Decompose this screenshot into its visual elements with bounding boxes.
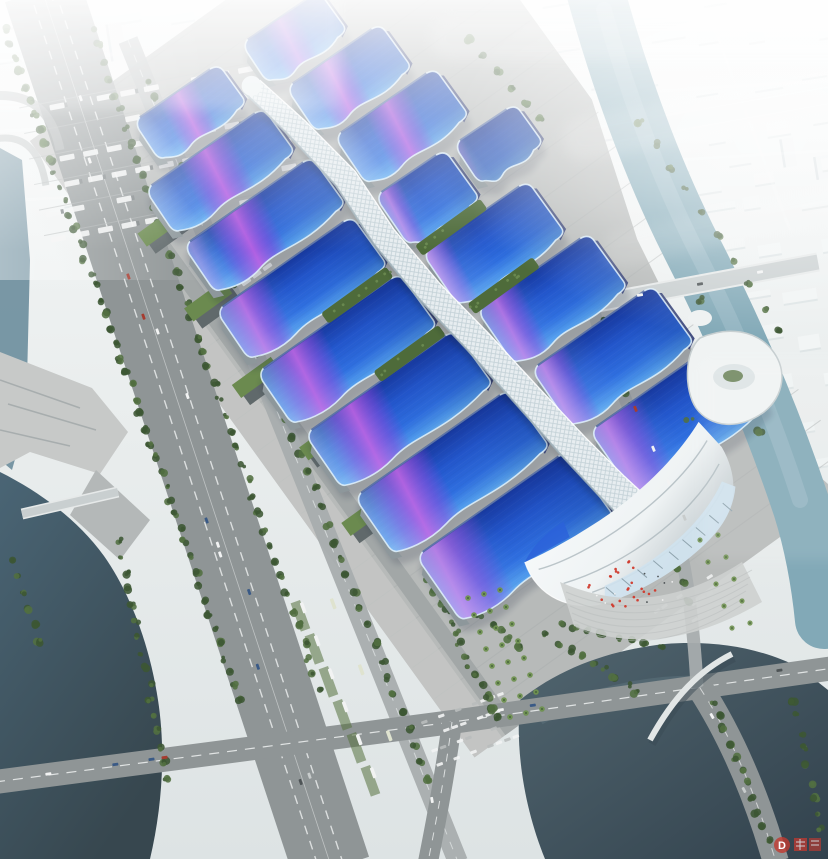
watermark: D bbox=[774, 837, 821, 853]
aerial-rendering: D bbox=[0, 0, 828, 859]
watermark-letter: D bbox=[778, 840, 786, 852]
scene-svg: D bbox=[0, 0, 828, 859]
